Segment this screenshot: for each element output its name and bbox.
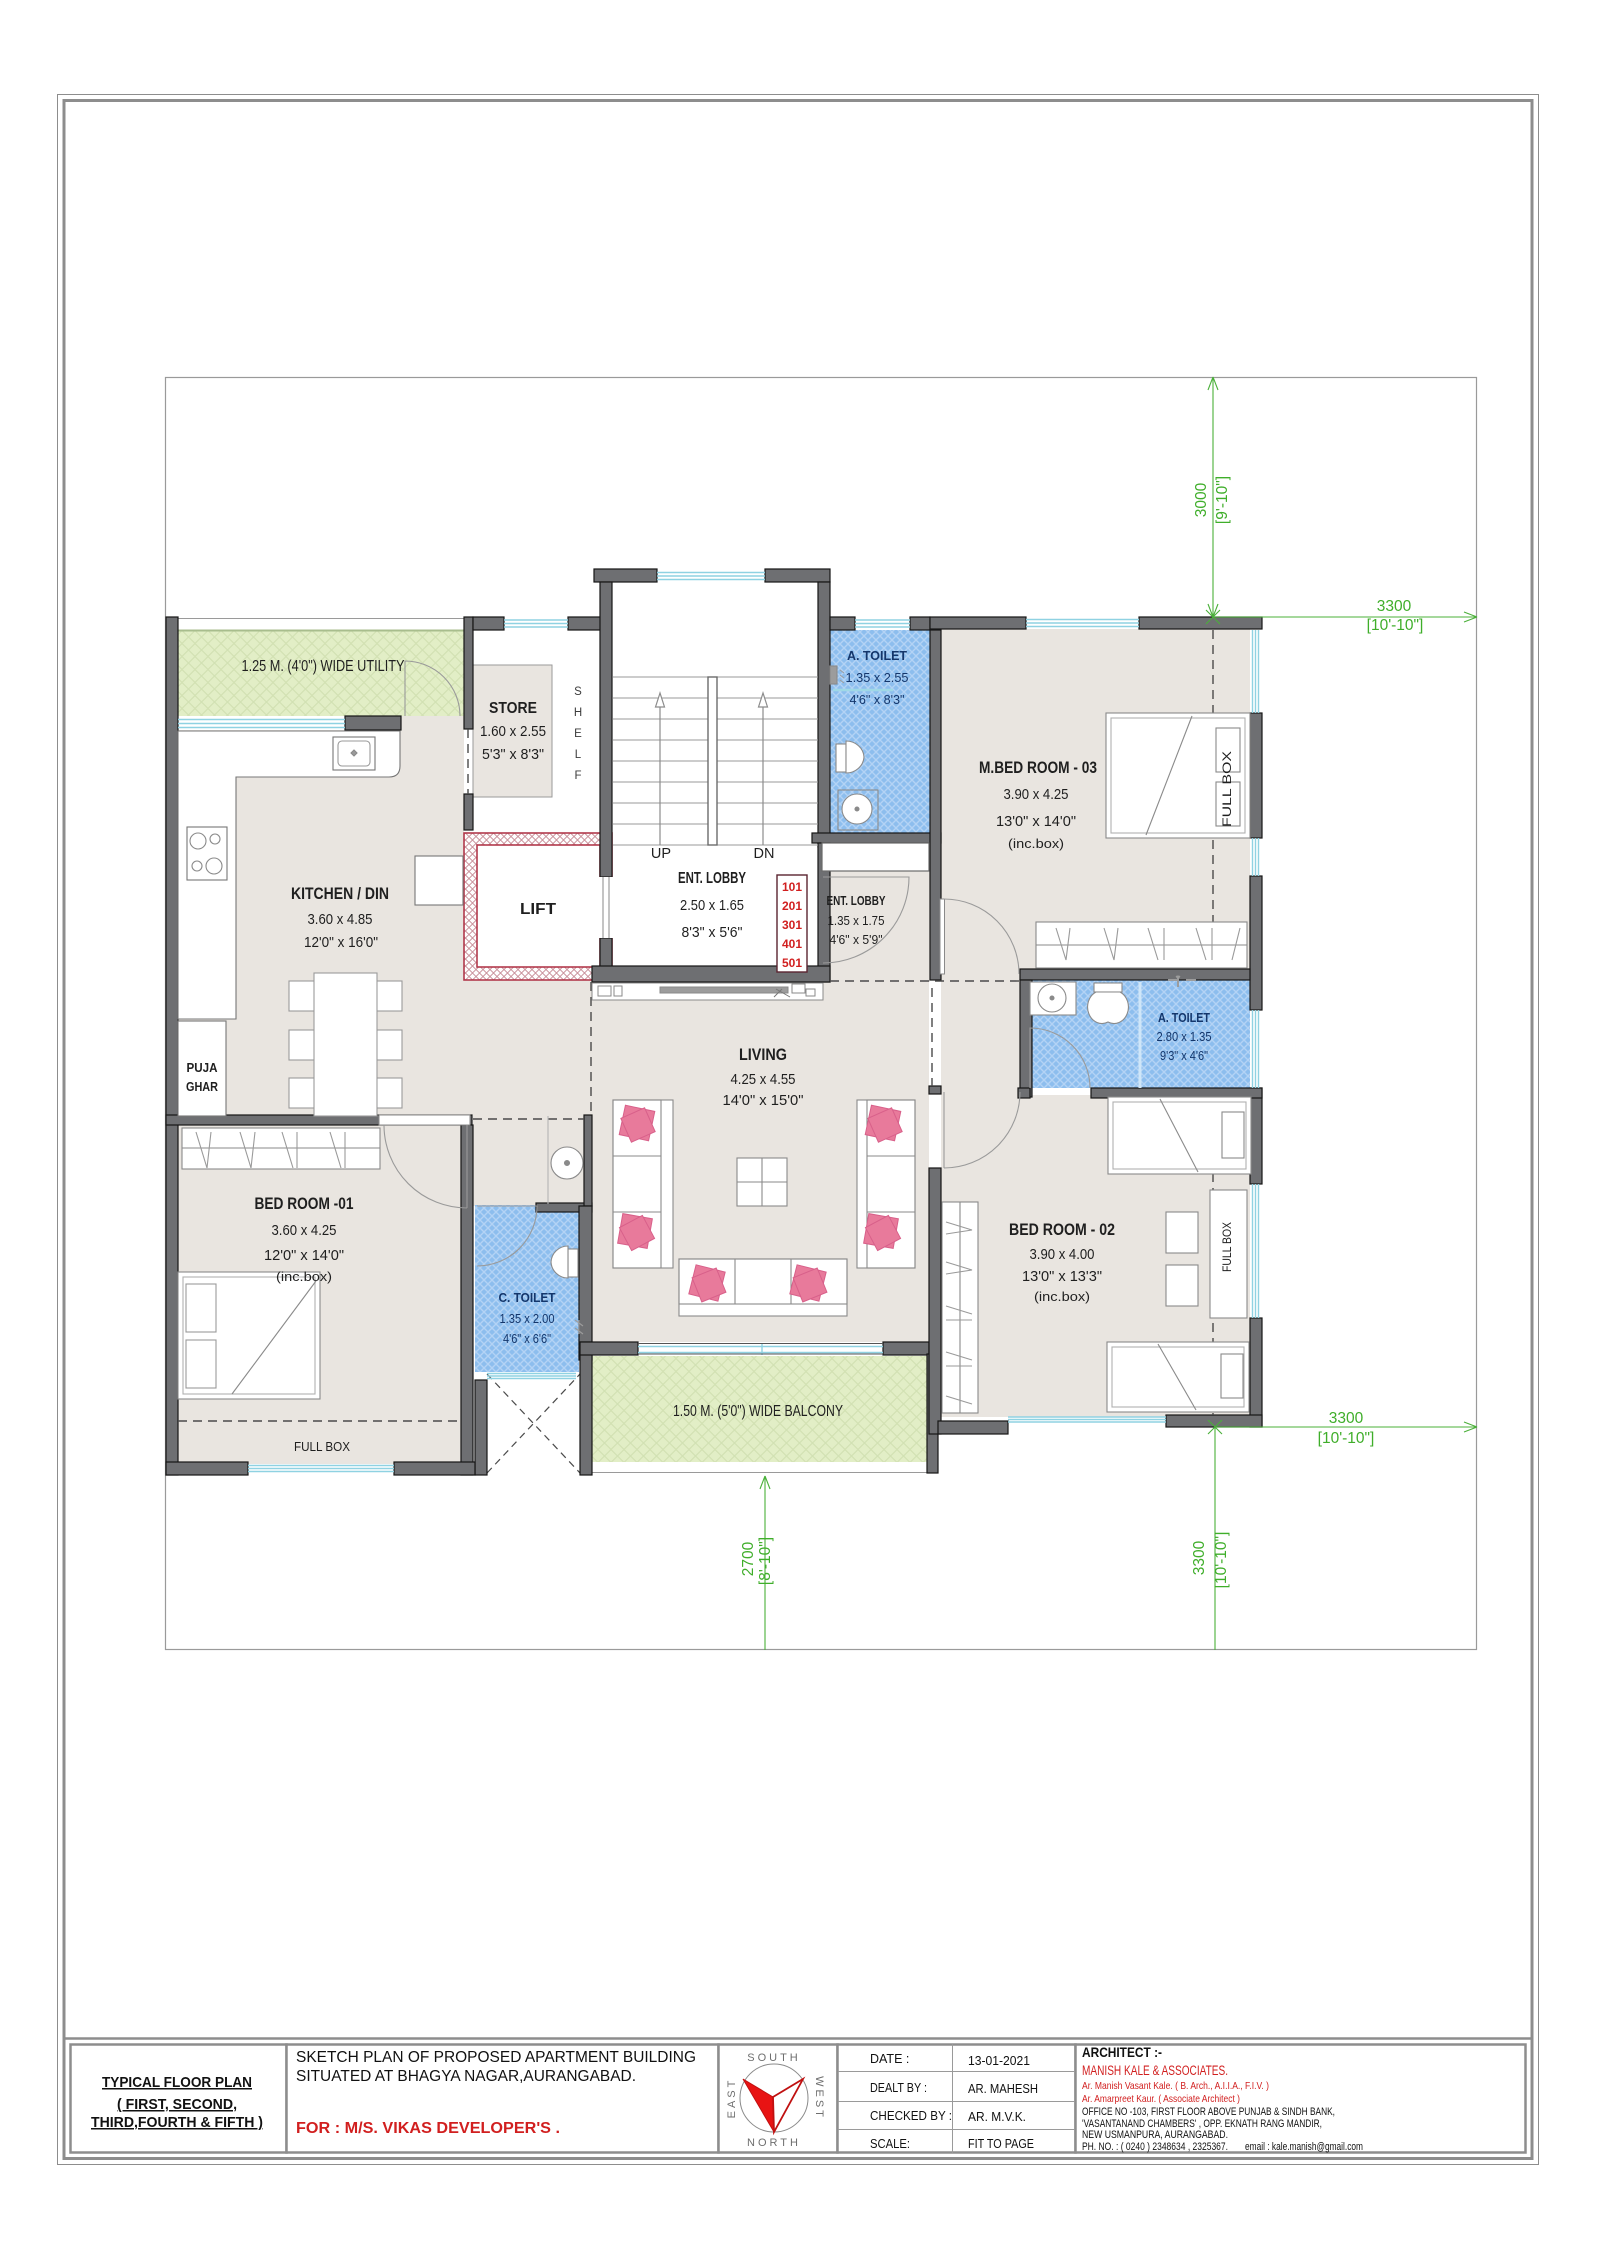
svg-text:1.35 x 1.75: 1.35 x 1.75 (828, 914, 885, 928)
svg-text:FULL BOX: FULL BOX (1220, 751, 1234, 827)
svg-text:(inc.box): (inc.box) (1008, 837, 1064, 851)
svg-text:4'6" x 5'9": 4'6" x 5'9" (830, 933, 883, 947)
svg-text:13'0" x 13'3": 13'0" x 13'3" (1022, 1268, 1102, 1285)
svg-text:201: 201 (782, 899, 802, 913)
svg-text:UP: UP (651, 846, 671, 862)
svg-text:C. TOILET: C. TOILET (499, 1290, 556, 1305)
svg-text:FOR : M/S. VIKAS DEVELOPER'S: FOR : M/S. VIKAS DEVELOPER'S . (296, 2120, 560, 2137)
svg-text:DEALT BY :: DEALT BY : (870, 2081, 927, 2095)
svg-text:H: H (574, 707, 582, 719)
svg-text:13-01-2021: 13-01-2021 (968, 2054, 1030, 2068)
svg-text:AR. M.V.K.: AR. M.V.K. (968, 2110, 1026, 2124)
svg-text:BED ROOM - 02: BED ROOM - 02 (1009, 1221, 1115, 1239)
svg-text:3300: 3300 (1191, 1540, 1208, 1575)
svg-text:1.25 M. (4'0") WIDE UTILITY: 1.25 M. (4'0") WIDE UTILITY (242, 658, 405, 675)
svg-text:3300: 3300 (1329, 1410, 1364, 1427)
svg-text:2.50 x 1.65: 2.50 x 1.65 (680, 898, 744, 914)
svg-text:Ar. Amarpreet Kaur. ( Associat: Ar. Amarpreet Kaur. ( Associate Architec… (1082, 2093, 1240, 2105)
svg-text:13'0" x 14'0": 13'0" x 14'0" (996, 813, 1076, 830)
svg-text:TYPICAL FLOOR PLAN: TYPICAL FLOOR PLAN (102, 2074, 252, 2091)
svg-text:301: 301 (782, 918, 802, 932)
svg-text:FULL BOX: FULL BOX (1220, 1222, 1234, 1272)
svg-text:2700: 2700 (740, 1541, 757, 1576)
svg-text:MANISH KALE & ASSOCIATES.: MANISH KALE & ASSOCIATES. (1082, 2063, 1228, 2078)
svg-text:5'3" x 8'3": 5'3" x 8'3" (482, 747, 544, 763)
svg-text:1.60 x 2.55: 1.60 x 2.55 (480, 724, 546, 740)
svg-text:ARCHITECT :-: ARCHITECT :- (1082, 2044, 1162, 2060)
svg-text:8'3" x 5'6": 8'3" x 5'6" (682, 925, 743, 941)
svg-text:3000: 3000 (1193, 482, 1210, 517)
svg-text:ENT. LOBBY: ENT. LOBBY (678, 870, 746, 887)
svg-text:NORTH: NORTH (747, 2137, 801, 2149)
svg-text:[10'-10"]: [10'-10"] (1367, 617, 1424, 634)
svg-text:F: F (574, 770, 581, 782)
svg-text:12'0" x 16'0": 12'0" x 16'0" (304, 934, 378, 951)
svg-text:401: 401 (782, 937, 802, 951)
svg-text:L: L (575, 749, 582, 761)
svg-text:ENT. LOBBY: ENT. LOBBY (827, 893, 886, 908)
svg-text:LIVING: LIVING (739, 1046, 787, 1064)
svg-text:E: E (574, 728, 582, 740)
svg-text:4'6" x 8'3": 4'6" x 8'3" (850, 693, 905, 707)
svg-text:[9'-10"]: [9'-10"] (1214, 476, 1231, 524)
svg-text:GHAR: GHAR (186, 1080, 218, 1094)
svg-text:SCALE:: SCALE: (870, 2137, 910, 2151)
svg-text:3.60 x 4.85: 3.60 x 4.85 (308, 911, 373, 928)
svg-text:WEST: WEST (813, 2076, 825, 2120)
svg-text:[8'-10"]: [8'-10"] (757, 1537, 774, 1585)
svg-text:101: 101 (782, 880, 802, 894)
svg-text:3.90 x 4.00: 3.90 x 4.00 (1030, 1246, 1095, 1263)
svg-text:EAST: EAST (726, 2078, 738, 2119)
svg-text:[10'-10"]: [10'-10"] (1318, 1430, 1375, 1447)
svg-text:OFFICE NO -103, FIRST FLOOR AB: OFFICE NO -103, FIRST FLOOR ABOVE PUNJAB… (1082, 2106, 1335, 2118)
svg-text:501: 501 (782, 956, 802, 970)
svg-text:1.50 M. (5'0") WIDE BALCONY: 1.50 M. (5'0") WIDE BALCONY (673, 1403, 843, 1420)
svg-text:BED ROOM -01: BED ROOM -01 (255, 1195, 354, 1213)
svg-text:1.35 x 2.00: 1.35 x 2.00 (500, 1312, 555, 1326)
svg-text:PH. NO. : ( 0240 ) 2348634 , 2: PH. NO. : ( 0240 ) 2348634 , 2325367. (1082, 2141, 1228, 2153)
svg-text:9'3" x 4'6": 9'3" x 4'6" (1160, 1049, 1208, 1063)
svg-text:THIRD,FOURTH & FIFTH ): THIRD,FOURTH & FIFTH ) (91, 2114, 263, 2131)
svg-text:3.90 x 4.25: 3.90 x 4.25 (1004, 786, 1069, 803)
svg-text:SITUATED AT BHAGYA NAGAR,AURAN: SITUATED AT BHAGYA NAGAR,AURANGABAD. (296, 2068, 636, 2085)
svg-text:14'0" x 15'0": 14'0" x 15'0" (723, 1092, 804, 1109)
svg-text:LIFT: LIFT (520, 901, 557, 918)
svg-text:NEW USMANPURA, AURANGABAD.: NEW USMANPURA, AURANGABAD. (1082, 2129, 1228, 2141)
svg-text:DATE :: DATE : (870, 2052, 909, 2066)
svg-text:FULL BOX: FULL BOX (294, 1440, 351, 1454)
svg-text:SKETCH PLAN OF PROPOSED APARTM: SKETCH PLAN OF PROPOSED APARTMENT BUILDI… (296, 2049, 696, 2066)
svg-text:(inc.box): (inc.box) (276, 1270, 332, 1284)
svg-text:4'6" x 6'6": 4'6" x 6'6" (503, 1332, 551, 1346)
svg-text:SOUTH: SOUTH (747, 2052, 801, 2064)
svg-text:1.35 x 2.55: 1.35 x 2.55 (846, 671, 909, 685)
svg-text:( FIRST, SECOND,: ( FIRST, SECOND, (117, 2096, 237, 2113)
svg-text:4.25 x 4.55: 4.25 x 4.55 (731, 1071, 796, 1088)
svg-text:Ar. Manish Vasant Kale. ( B. A: Ar. Manish Vasant Kale. ( B. Arch., A.I.… (1082, 2080, 1269, 2092)
svg-text:3300: 3300 (1377, 598, 1412, 615)
svg-text:A. TOILET: A. TOILET (1158, 1011, 1210, 1025)
svg-text:A. TOILET: A. TOILET (847, 649, 907, 663)
svg-text:2.80 x 1.35: 2.80 x 1.35 (1157, 1030, 1212, 1044)
svg-text:3.60 x 4.25: 3.60 x 4.25 (272, 1222, 337, 1239)
svg-text:(inc.box): (inc.box) (1034, 1290, 1090, 1304)
svg-text:[10'-10"]: [10'-10"] (1213, 1532, 1230, 1589)
svg-text:AR. MAHESH: AR. MAHESH (968, 2082, 1038, 2096)
svg-text:FIT TO PAGE: FIT TO PAGE (968, 2137, 1034, 2151)
svg-text:S: S (574, 686, 582, 698)
svg-text:12'0" x 14'0": 12'0" x 14'0" (264, 1247, 344, 1264)
svg-text:M.BED ROOM - 03: M.BED ROOM - 03 (979, 759, 1097, 777)
svg-text:STORE: STORE (489, 700, 537, 717)
svg-text:email : kale.manish@gmail.com: email : kale.manish@gmail.com (1245, 2141, 1363, 2153)
svg-text:PUJA: PUJA (187, 1061, 218, 1075)
svg-text:CHECKED BY :: CHECKED BY : (870, 2109, 952, 2123)
svg-text:KITCHEN / DIN: KITCHEN / DIN (291, 885, 389, 903)
svg-text:DN: DN (754, 846, 775, 862)
